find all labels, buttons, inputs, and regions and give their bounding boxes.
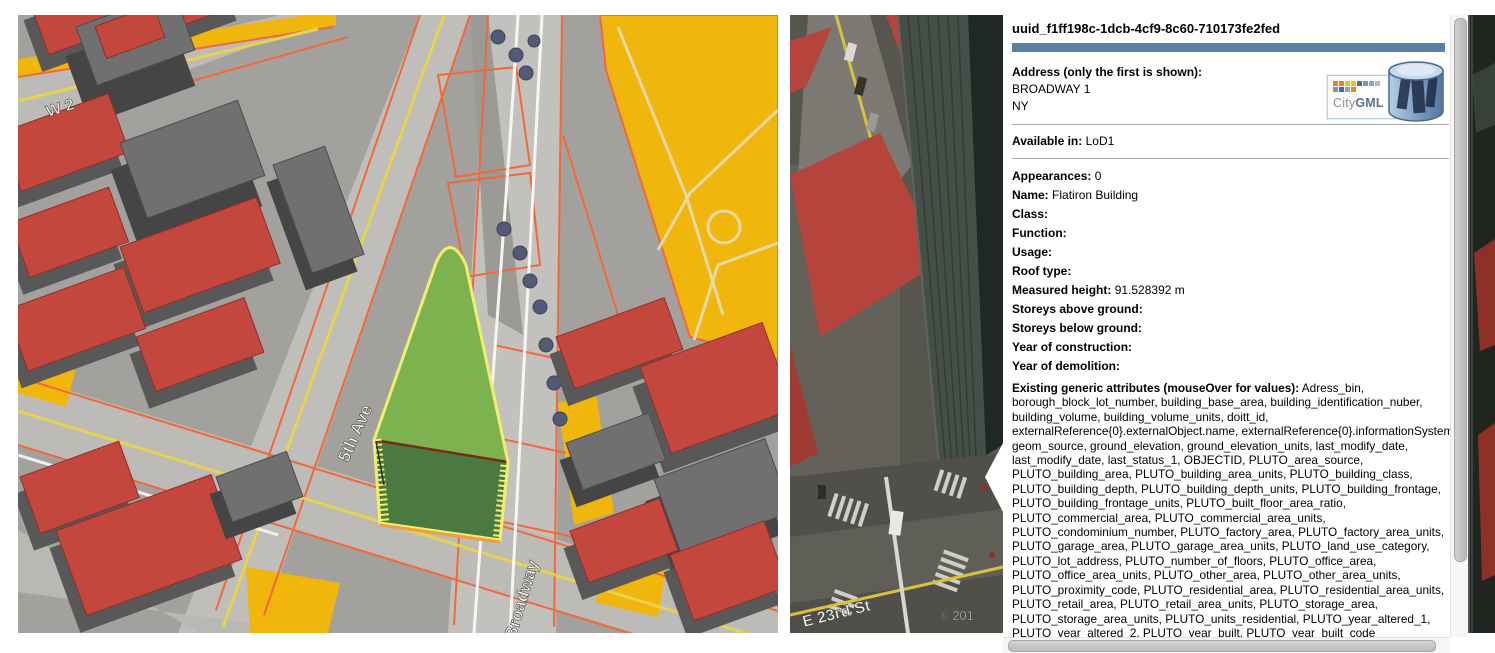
field-storeys-below: Storeys below ground: [1012,319,1450,338]
available-in-row: Available in: LoD1 [1012,133,1450,150]
info-panel: uuid_f1ff198c-1dcb-4cf9-8c60-710173fe2fe… [1003,15,1468,653]
field-measured-height: Measured height: 91.528392 m [1012,281,1450,300]
field-appearances: Appearances: 0 [1012,167,1450,186]
field-roof-type: Roof type: [1012,262,1450,281]
field-year-construction: Year of construction: [1012,338,1450,357]
citygml-viewer: .roofR{fill:#c4473e;stroke:#8e2f28;strok… [0,0,1495,653]
field-usage: Usage: [1012,243,1450,262]
field-name: Name: Flatiron Building [1012,186,1450,205]
title-underline-bar [1012,43,1445,52]
generic-attributes: Existing generic attributes (mouseOver f… [1012,381,1450,637]
copyright-text: © 201 [940,609,974,623]
field-year-demolition: Year of demolition: [1012,357,1450,376]
field-storeys-above: Storeys above ground: [1012,300,1450,319]
attribute-fields: Appearances: 0 Name: Flatiron Building C… [1012,167,1450,376]
overview-scene: .roofR{fill:#c4473e;stroke:#8e2f28;strok… [18,15,778,633]
feature-id-title: uuid_f1ff198c-1dcb-4cf9-8c60-710173fe2fe… [1012,21,1450,36]
citygml-logo: CityGML [1327,63,1449,129]
separator [1012,158,1449,159]
vertical-scrollbar-thumb[interactable] [1454,18,1467,562]
right-edge-scene [1470,15,1495,633]
horizontal-scrollbar[interactable] [1003,637,1450,653]
citygml-cylinder-icon [1385,59,1447,125]
map-view-overview[interactable]: .roofR{fill:#c4473e;stroke:#8e2f28;strok… [18,15,778,633]
field-class: Class: [1012,205,1450,224]
field-function: Function: [1012,224,1450,243]
vertical-scrollbar[interactable] [1450,15,1468,637]
horizontal-scrollbar-thumb[interactable] [1008,640,1436,652]
panel-scroll-area[interactable]: uuid_f1ff198c-1dcb-4cf9-8c60-710173fe2fe… [1003,15,1450,637]
